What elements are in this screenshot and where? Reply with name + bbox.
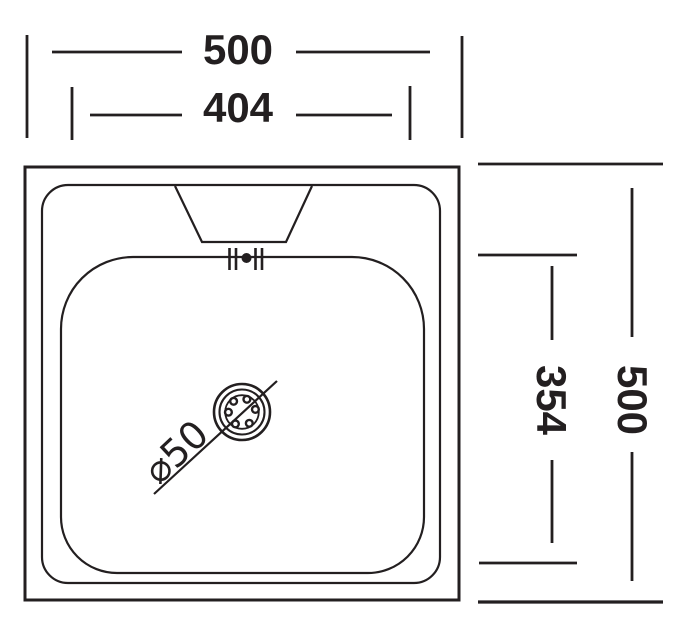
sink-dimension-drawing: 500 404 500 354 ⌀50: [0, 0, 683, 634]
dim-label-outer-width: 500: [203, 29, 273, 71]
dim-label-inner-height: 354: [530, 365, 572, 435]
dim-label-outer-height: 500: [611, 365, 653, 435]
drawing-linework: [0, 0, 683, 634]
overflow-mark: [230, 248, 263, 270]
dim-label-inner-width: 404: [203, 87, 273, 129]
faucet-recess: [175, 186, 312, 242]
sink-bowl: [61, 257, 424, 573]
